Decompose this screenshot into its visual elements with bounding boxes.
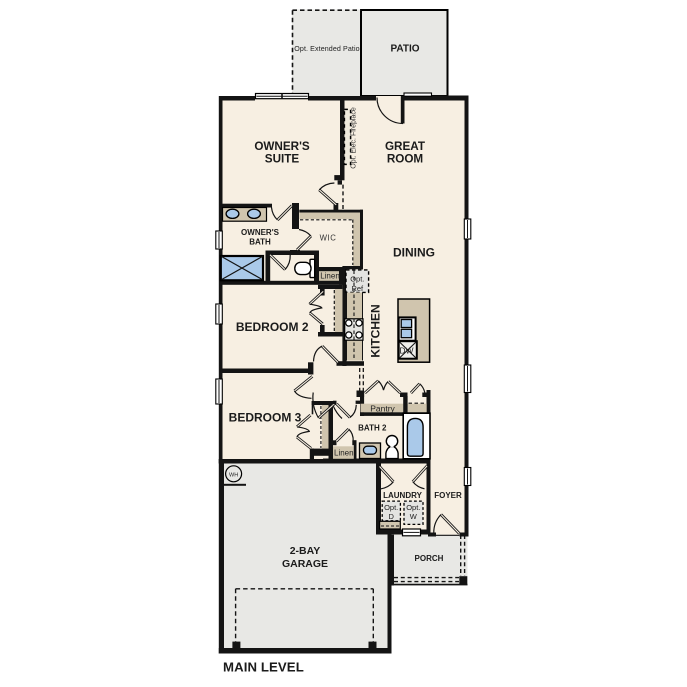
svg-text:OWNER'S: OWNER'S [241, 228, 280, 237]
svg-text:Opt.: Opt. [406, 503, 420, 512]
svg-text:Opt.: Opt. [384, 503, 398, 512]
svg-text:WIC: WIC [320, 233, 337, 242]
svg-text:DINING: DINING [393, 246, 435, 260]
svg-text:W: W [410, 512, 418, 521]
svg-text:Ref: Ref [351, 284, 364, 293]
svg-text:PATIO: PATIO [390, 44, 419, 55]
svg-text:OWNER'S: OWNER'S [254, 140, 310, 153]
svg-text:BEDROOM 3: BEDROOM 3 [229, 410, 302, 424]
svg-text:D: D [388, 512, 394, 521]
svg-text:BATH: BATH [249, 238, 271, 247]
svg-text:Opt. Elec. Fireplace: Opt. Elec. Fireplace [350, 107, 357, 169]
svg-text:SUITE: SUITE [265, 153, 300, 166]
svg-text:PORCH: PORCH [415, 554, 444, 563]
svg-text:Linen: Linen [320, 272, 340, 281]
svg-text:MAIN LEVEL: MAIN LEVEL [223, 660, 304, 675]
svg-text:LAUNDRY: LAUNDRY [383, 491, 422, 500]
svg-text:Opt. Extended Patio: Opt. Extended Patio [294, 45, 359, 53]
svg-text:ROOM: ROOM [387, 153, 423, 166]
svg-text:Linen: Linen [334, 449, 354, 458]
svg-text:KITCHEN: KITCHEN [369, 304, 383, 357]
svg-text:BATH 2: BATH 2 [358, 423, 387, 432]
svg-text:Opt.: Opt. [350, 275, 364, 284]
svg-text:DW: DW [399, 346, 413, 356]
svg-text:2-BAY: 2-BAY [290, 545, 321, 557]
svg-text:WH: WH [229, 472, 238, 478]
svg-text:Pantry: Pantry [370, 403, 395, 413]
svg-text:GREAT: GREAT [385, 140, 426, 153]
svg-text:FOYER: FOYER [434, 491, 462, 500]
svg-text:GARAGE: GARAGE [282, 558, 328, 570]
svg-text:BEDROOM 2: BEDROOM 2 [236, 320, 309, 334]
